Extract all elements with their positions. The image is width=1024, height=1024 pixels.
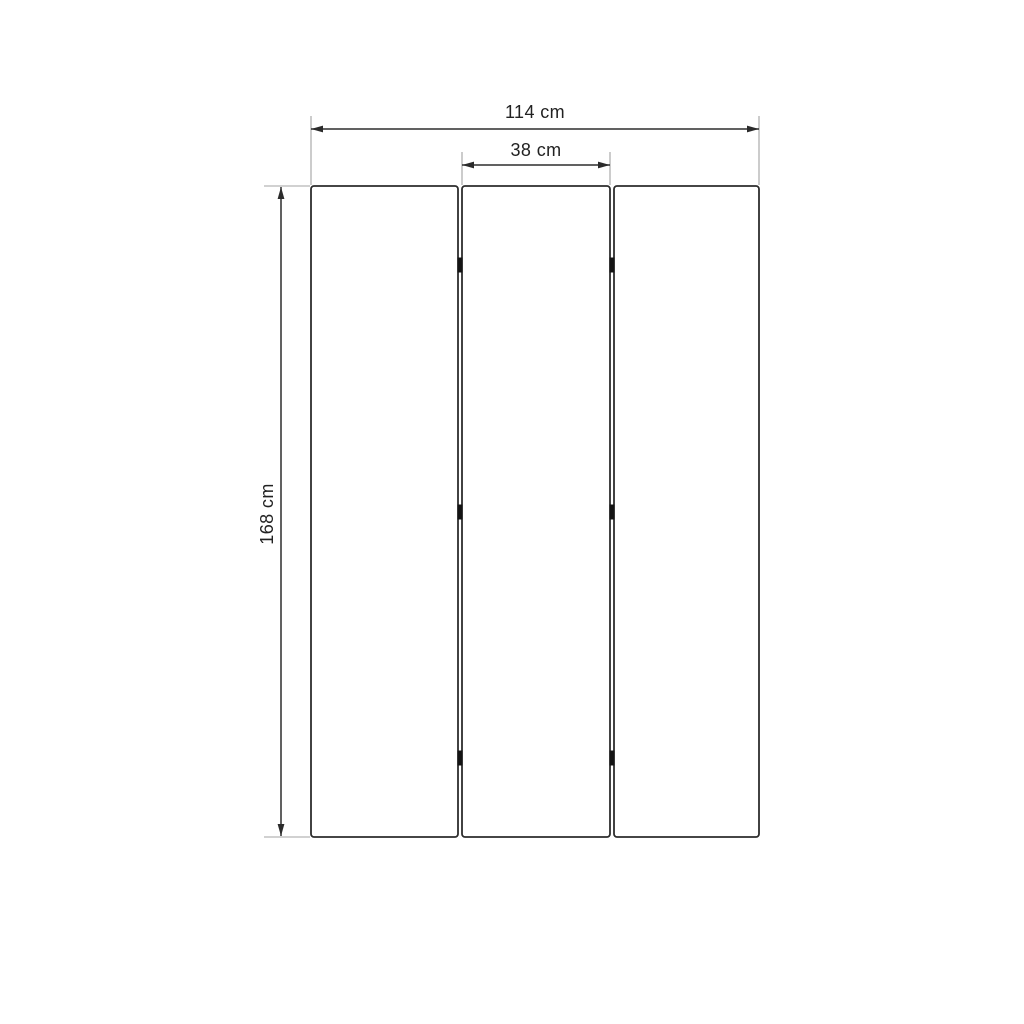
hinge-icon-right-middle — [610, 505, 615, 520]
height-dimension: 168 cm — [257, 186, 310, 837]
dimension-diagram-page: 114 cm 38 cm 168 cm — [0, 0, 1024, 1024]
hinge-icon-right-bottom — [610, 751, 615, 766]
hinge-icon-left-top — [458, 258, 463, 273]
panel-middle — [462, 186, 610, 837]
height-label: 168 cm — [257, 483, 277, 544]
panel-width-dimension: 38 cm — [462, 140, 610, 185]
panel-right — [614, 186, 759, 837]
hinge-icon-left-middle — [458, 505, 463, 520]
panel-left — [311, 186, 458, 837]
total-width-label: 114 cm — [505, 102, 565, 122]
hinge-icon-right-top — [610, 258, 615, 273]
hinge-icon-left-bottom — [458, 751, 463, 766]
panels — [311, 186, 759, 837]
folding-screen-dimension-diagram: 114 cm 38 cm 168 cm — [0, 0, 1024, 1024]
panel-width-label: 38 cm — [510, 140, 561, 160]
